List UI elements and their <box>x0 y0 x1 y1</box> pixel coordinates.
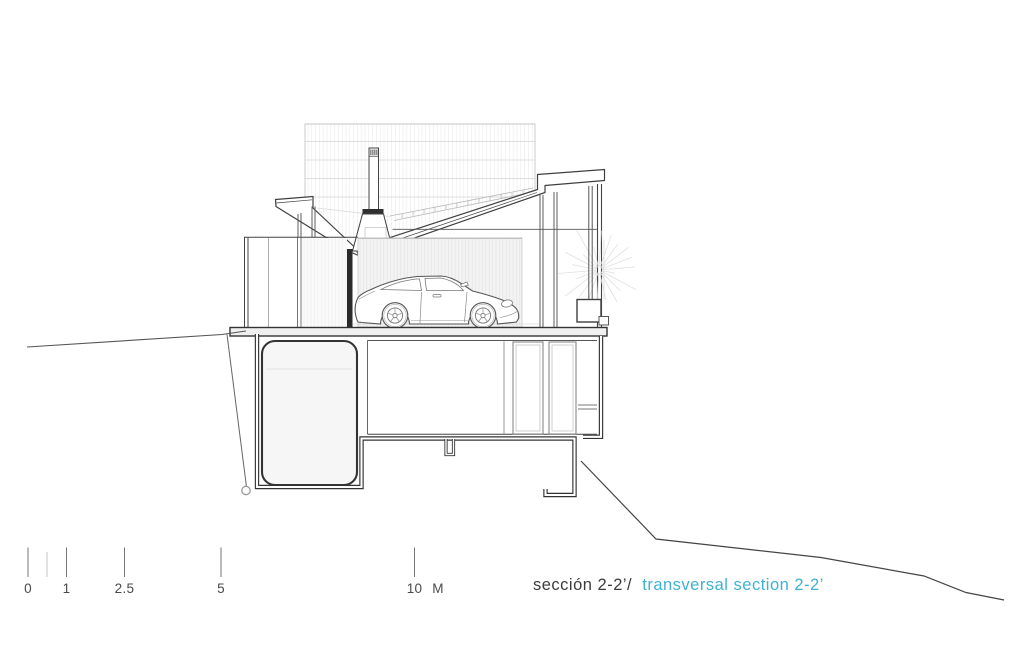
section-cut-wall <box>347 249 353 330</box>
drawing-title: sección 2-2’/ transversal section 2-2’ <box>533 576 824 594</box>
drain-pipe-circle <box>242 486 250 494</box>
floor-slab <box>230 328 607 337</box>
water-tank <box>262 341 357 485</box>
scale-label-2: 2.5 <box>115 581 135 596</box>
hood-cap <box>363 209 384 214</box>
terrace-light-box <box>577 300 601 323</box>
closet-panel-left <box>513 342 543 434</box>
scale-label-4: 10 <box>407 581 423 596</box>
architectural-section-drawing: 0 1 2.5 5 10 M sección 2-2’/ transversal… <box>0 0 1024 663</box>
scale-bar: 0 1 2.5 5 10 M <box>24 548 444 597</box>
excavation-line <box>227 335 247 488</box>
basement <box>257 334 601 495</box>
scale-label-1: 1 <box>63 581 71 596</box>
drawing-sheet: 0 1 2.5 5 10 M sección 2-2’/ transversal… <box>0 0 1024 663</box>
scale-unit: M <box>432 581 444 596</box>
closet-panel-right <box>549 342 576 434</box>
scale-label-3: 5 <box>217 581 225 596</box>
basement-right-wall <box>583 336 601 437</box>
scale-label-0: 0 <box>24 581 32 596</box>
chimney-flue <box>369 148 379 210</box>
drawing-title-primary: sección 2-2’/ <box>533 576 632 594</box>
fireplace <box>353 148 394 251</box>
foundation-stub <box>446 439 454 455</box>
drawing-title-secondary: transversal section 2-2’ <box>642 576 824 594</box>
terrain-line-left <box>27 331 246 347</box>
